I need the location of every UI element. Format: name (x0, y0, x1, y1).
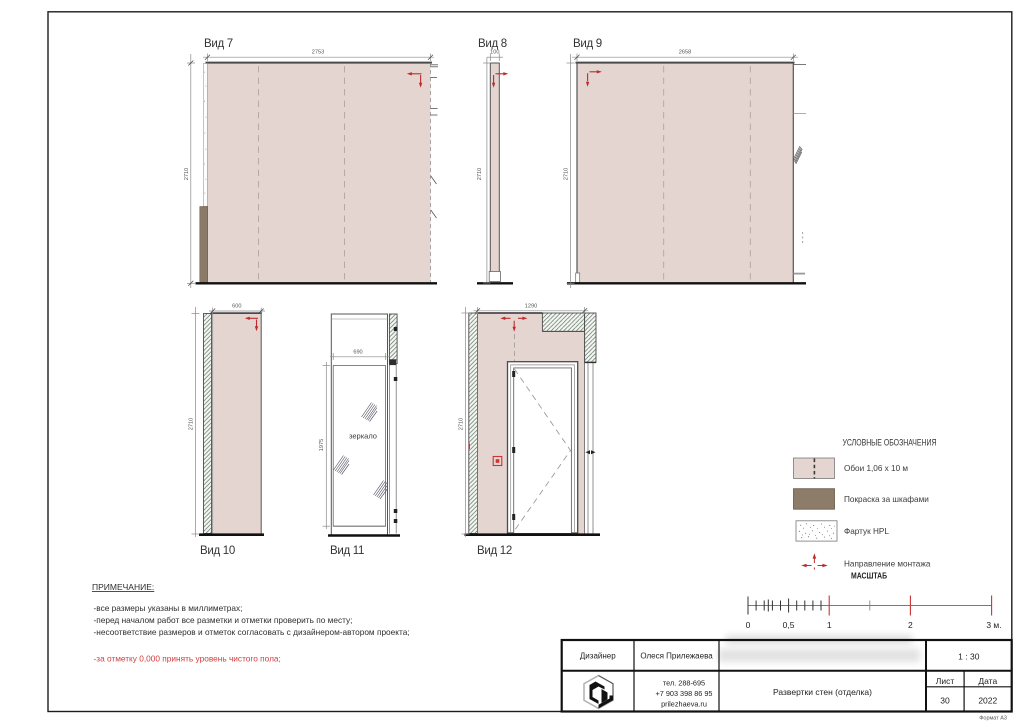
svg-text:2658: 2658 (679, 50, 691, 56)
svg-text:Формат А3: Формат А3 (979, 716, 1007, 722)
svg-text:600: 600 (232, 304, 241, 310)
svg-text:1: 1 (827, 620, 832, 630)
svg-text:1290: 1290 (525, 303, 537, 309)
svg-text:2710: 2710 (477, 168, 483, 180)
svg-text:УСЛОВНЫЕ ОБОЗНАЧЕНИЯ: УСЛОВНЫЕ ОБОЗНАЧЕНИЯ (843, 438, 937, 448)
svg-text:Вид 12: Вид 12 (477, 545, 512, 557)
svg-text:тел. 288-695: тел. 288-695 (663, 679, 705, 688)
svg-text:+7 903 398 86 95: +7 903 398 86 95 (655, 689, 712, 698)
svg-text:зеркало: зеркало (349, 432, 377, 441)
svg-text:Вид 7: Вид 7 (204, 38, 233, 50)
svg-text:1 : 30: 1 : 30 (958, 652, 980, 662)
svg-text:Вид 8: Вид 8 (478, 38, 507, 50)
svg-text:Вид 11: Вид 11 (330, 545, 364, 557)
svg-text:2022: 2022 (978, 696, 997, 706)
svg-text:-все размеры указаны в миллиме: -все размеры указаны в миллиметрах; (94, 603, 243, 613)
svg-text:Вид 10: Вид 10 (200, 545, 235, 557)
svg-text:690: 690 (353, 350, 362, 356)
svg-text:Фартук HPL: Фартук HPL (844, 527, 889, 536)
svg-text:1975: 1975 (319, 439, 325, 451)
svg-text:Лист: Лист (936, 676, 955, 686)
svg-text:МАСШТАБ: МАСШТАБ (851, 571, 887, 581)
svg-text:0,5: 0,5 (783, 620, 795, 630)
svg-text:Вид 9: Вид 9 (573, 38, 602, 50)
svg-text:-перед началом работ все разме: -перед началом работ все разметки и отме… (94, 615, 353, 625)
svg-text:ПРИМЕЧАНИЕ:: ПРИМЕЧАНИЕ: (92, 582, 154, 592)
svg-text:2753: 2753 (312, 50, 324, 56)
svg-text:-за отметку 0,000 принять уров: -за отметку 0,000 принять уровень чистог… (94, 654, 281, 664)
svg-text:100: 100 (490, 50, 499, 56)
svg-text:3 м.: 3 м. (986, 620, 1001, 630)
svg-text:Олеся Прилежаева: Олеся Прилежаева (640, 652, 713, 661)
svg-text:prilezhaeva.ru: prilezhaeva.ru (661, 700, 707, 709)
svg-text:Дизайнер: Дизайнер (580, 652, 616, 661)
svg-text:Покраска за шкафами: Покраска за шкафами (844, 495, 929, 504)
svg-text:2710: 2710 (564, 168, 570, 180)
svg-text:30: 30 (940, 696, 950, 706)
svg-text:Направление монтажа: Направление монтажа (844, 560, 931, 569)
svg-text:2710: 2710 (188, 418, 194, 430)
svg-text:Дата: Дата (978, 676, 997, 686)
svg-text:0: 0 (746, 620, 751, 630)
svg-text:2710: 2710 (184, 168, 190, 180)
svg-text:Развертки стен (отделка): Развертки стен (отделка) (773, 687, 872, 697)
svg-text:Обои 1,06 х 10 м: Обои 1,06 х 10 м (844, 464, 908, 473)
svg-text:-несоответствие размеров и отм: -несоответствие размеров и отметок согла… (94, 627, 410, 637)
svg-text:2: 2 (908, 620, 913, 630)
svg-text:2710: 2710 (458, 418, 464, 430)
